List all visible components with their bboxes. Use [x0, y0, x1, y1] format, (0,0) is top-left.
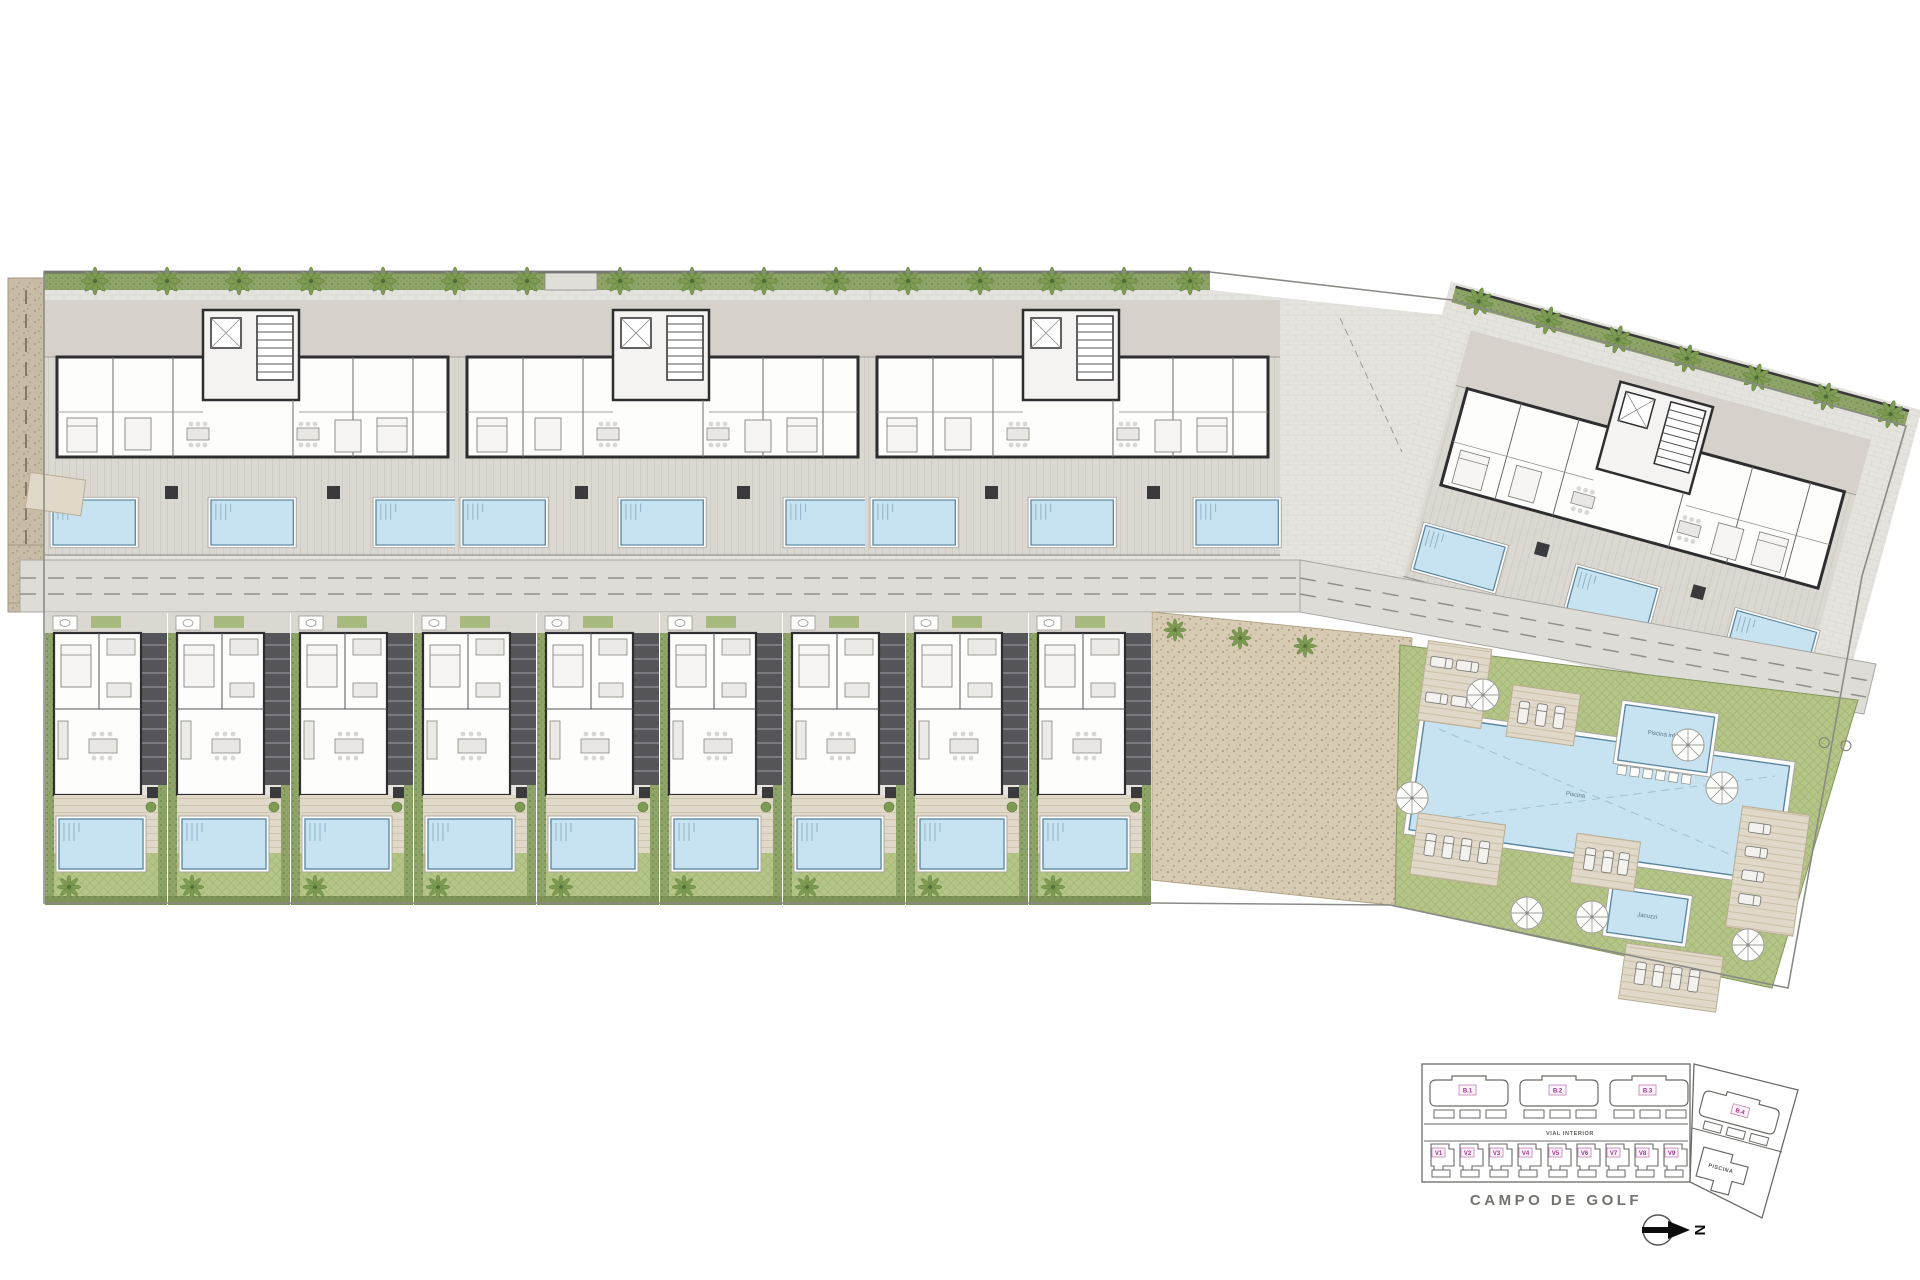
keyplan-label-v8: V8	[1639, 1151, 1647, 1157]
villa-plot-8	[906, 613, 1028, 905]
keyplan-label-v3: V3	[1493, 1151, 1501, 1157]
villa-plot-1	[45, 613, 167, 905]
keyplan-golf-label: CAMPO DE GOLF	[1470, 1192, 1642, 1209]
sand-path-area	[1152, 612, 1412, 906]
north-arrow-head	[1668, 1221, 1690, 1239]
villa-row	[45, 613, 1151, 905]
keyplan-label-v5: V5	[1552, 1151, 1560, 1157]
apartment-block-3	[865, 300, 1281, 556]
villa-plot-6	[660, 613, 782, 905]
keyplan-label-b1: B.1	[1463, 1089, 1473, 1095]
keyplan-villas: V1 V2 V3 V4 V5 V6 V7 V8 V9	[1431, 1144, 1687, 1177]
keyplan-label-v6: V6	[1581, 1151, 1589, 1157]
keyplan-villa-labels: V1 V2 V3 V4 V5 V6 V7 V8 V9	[1432, 1148, 1678, 1157]
site-plan-page: Piscina Piscina infantil Jacuzzi	[0, 0, 1920, 1280]
keyplan-label-b3: B.3	[1643, 1089, 1653, 1095]
keyplan-label-v7: V7	[1610, 1151, 1618, 1157]
villa-plot-5	[537, 613, 659, 905]
keyplan-label-v9: V9	[1668, 1151, 1676, 1157]
parasol-icon	[1396, 782, 1428, 814]
keyplan-road-label: VIAL INTERIOR	[1546, 1131, 1594, 1137]
parasol-icon	[1467, 679, 1499, 711]
villa-plot-2	[168, 613, 290, 905]
keyplan-villa-pools	[1432, 1170, 1683, 1177]
deck-4	[1570, 833, 1640, 891]
parasol-icon	[1672, 729, 1704, 761]
keyplan-buildings: B.1 B.2 B.3	[1430, 1076, 1688, 1118]
north-arrow: N	[1642, 1215, 1708, 1245]
keyplan-label-v2: V2	[1464, 1151, 1472, 1157]
north-label: N	[1691, 1225, 1708, 1236]
apartment-block-2	[455, 300, 871, 556]
jacuzzi-pool: Jacuzzi	[1602, 884, 1692, 947]
deck-2	[1506, 685, 1581, 746]
parasol-icon	[1706, 772, 1738, 804]
deck-3	[1410, 813, 1506, 887]
villa-plot-3	[291, 613, 413, 905]
villa-plot-4	[414, 613, 536, 905]
keyplan-label-b2: B.2	[1553, 1089, 1563, 1095]
apartment-block-1	[45, 300, 461, 556]
site-plan-canvas: Piscina Piscina infantil Jacuzzi	[0, 0, 1920, 1280]
parasol-icon	[1732, 929, 1764, 961]
parasol-icon	[1576, 901, 1608, 933]
villa-plot-9	[1029, 613, 1151, 905]
villa-plot-7	[783, 613, 905, 905]
keyplan-block-pools	[1434, 1110, 1686, 1118]
parasol-icon	[1511, 897, 1543, 929]
keyplan-label-v4: V4	[1522, 1151, 1530, 1157]
keyplan-label-v1: V1	[1435, 1151, 1443, 1157]
key-plan: B.1 B.2 B.3 VIAL INTERIOR V1 V2 V3 V4 V5	[1422, 1064, 1798, 1245]
